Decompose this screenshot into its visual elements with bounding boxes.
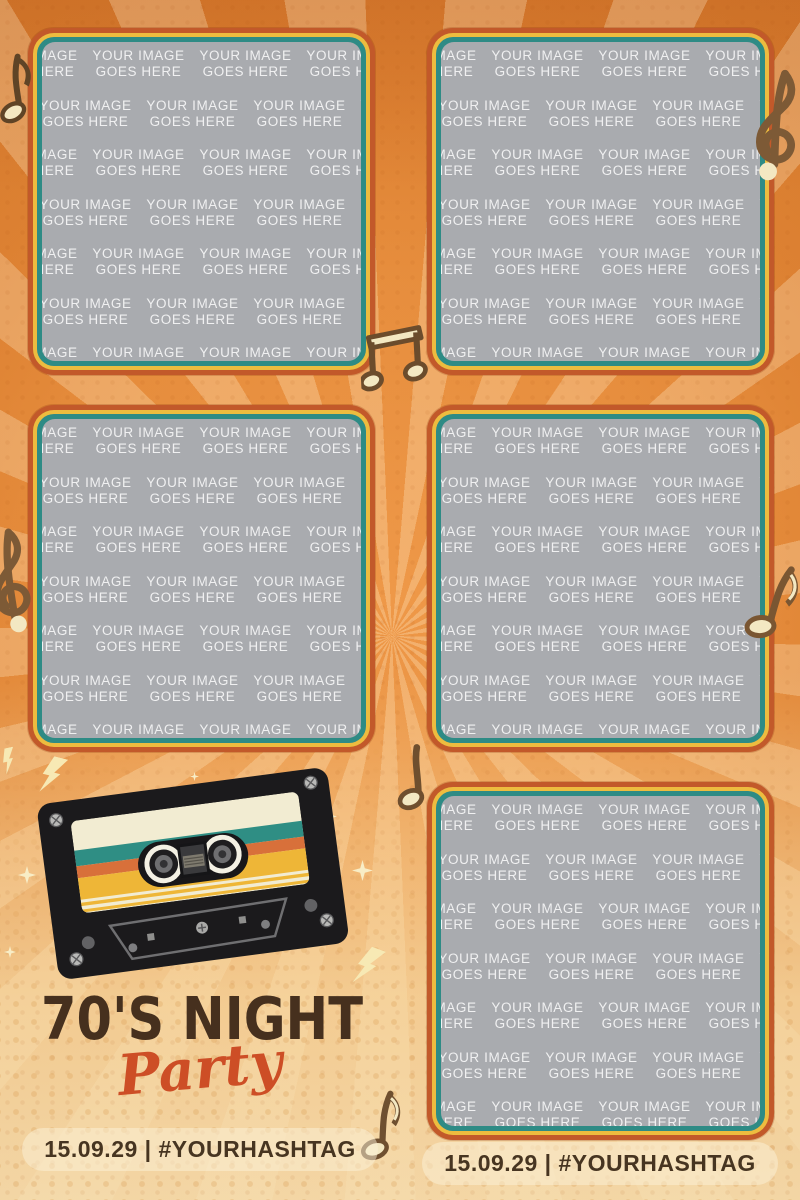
frame-ring-yellow: YOUR IMAGEGOES HEREYOUR IMAGEGOES HEREYO… xyxy=(432,33,769,370)
frame-ring-teal: YOUR IMAGEGOES HEREYOUR IMAGEGOES HEREYO… xyxy=(37,37,366,366)
event-info-text: 15.09.29 | #YOURHASHTAG xyxy=(422,1142,778,1185)
frame-ring-teal: YOUR IMAGEGOES HEREYOUR IMAGEGOES HEREYO… xyxy=(436,37,765,366)
event-info-right: 15.09.29 | #YOURHASHTAG xyxy=(428,1142,772,1185)
photo-placeholder-area[interactable]: YOUR IMAGEGOES HEREYOUR IMAGEGOES HEREYO… xyxy=(42,419,361,738)
frame-ring-yellow: YOUR IMAGEGOES HEREYOUR IMAGEGOES HEREYO… xyxy=(33,410,370,747)
frame-ring-yellow: YOUR IMAGEGOES HEREYOUR IMAGEGOES HEREYO… xyxy=(432,410,769,747)
photo-placeholder-area[interactable]: YOUR IMAGEGOES HEREYOUR IMAGEGOES HEREYO… xyxy=(42,42,361,361)
photo-placeholder-area[interactable]: YOUR IMAGEGOES HEREYOUR IMAGEGOES HEREYO… xyxy=(441,42,760,361)
photo-slot-middle-left[interactable]: YOUR IMAGEGOES HEREYOUR IMAGEGOES HEREYO… xyxy=(28,405,375,752)
photo-slot-middle-right[interactable]: YOUR IMAGEGOES HEREYOUR IMAGEGOES HEREYO… xyxy=(427,405,774,752)
frame-ring-teal: YOUR IMAGEGOES HEREYOUR IMAGEGOES HEREYO… xyxy=(436,414,765,743)
seventies-party-photobooth-template: YOUR IMAGEGOES HEREYOUR IMAGEGOES HEREYO… xyxy=(0,0,800,1200)
photo-slot-top-left[interactable]: YOUR IMAGEGOES HEREYOUR IMAGEGOES HEREYO… xyxy=(28,28,375,375)
frame-ring-teal: YOUR IMAGEGOES HEREYOUR IMAGEGOES HEREYO… xyxy=(436,791,765,1131)
photo-slot-bottom-right[interactable]: YOUR IMAGEGOES HEREYOUR IMAGEGOES HEREYO… xyxy=(427,782,774,1140)
frame-ring-yellow: YOUR IMAGEGOES HEREYOUR IMAGEGOES HEREYO… xyxy=(432,787,769,1135)
cassette-tape-illustration xyxy=(31,761,355,987)
event-info-text: 15.09.29 | #YOURHASHTAG xyxy=(22,1128,378,1171)
event-info-left: 15.09.29 | #YOURHASHTAG xyxy=(28,1128,372,1171)
photo-placeholder-area[interactable]: YOUR IMAGEGOES HEREYOUR IMAGEGOES HEREYO… xyxy=(441,419,760,738)
photo-slot-top-right[interactable]: YOUR IMAGEGOES HEREYOUR IMAGEGOES HEREYO… xyxy=(427,28,774,375)
frame-ring-teal: YOUR IMAGEGOES HEREYOUR IMAGEGOES HEREYO… xyxy=(37,414,366,743)
photo-placeholder-area[interactable]: YOUR IMAGEGOES HEREYOUR IMAGEGOES HEREYO… xyxy=(441,796,760,1126)
frame-ring-yellow: YOUR IMAGEGOES HEREYOUR IMAGEGOES HEREYO… xyxy=(33,33,370,370)
